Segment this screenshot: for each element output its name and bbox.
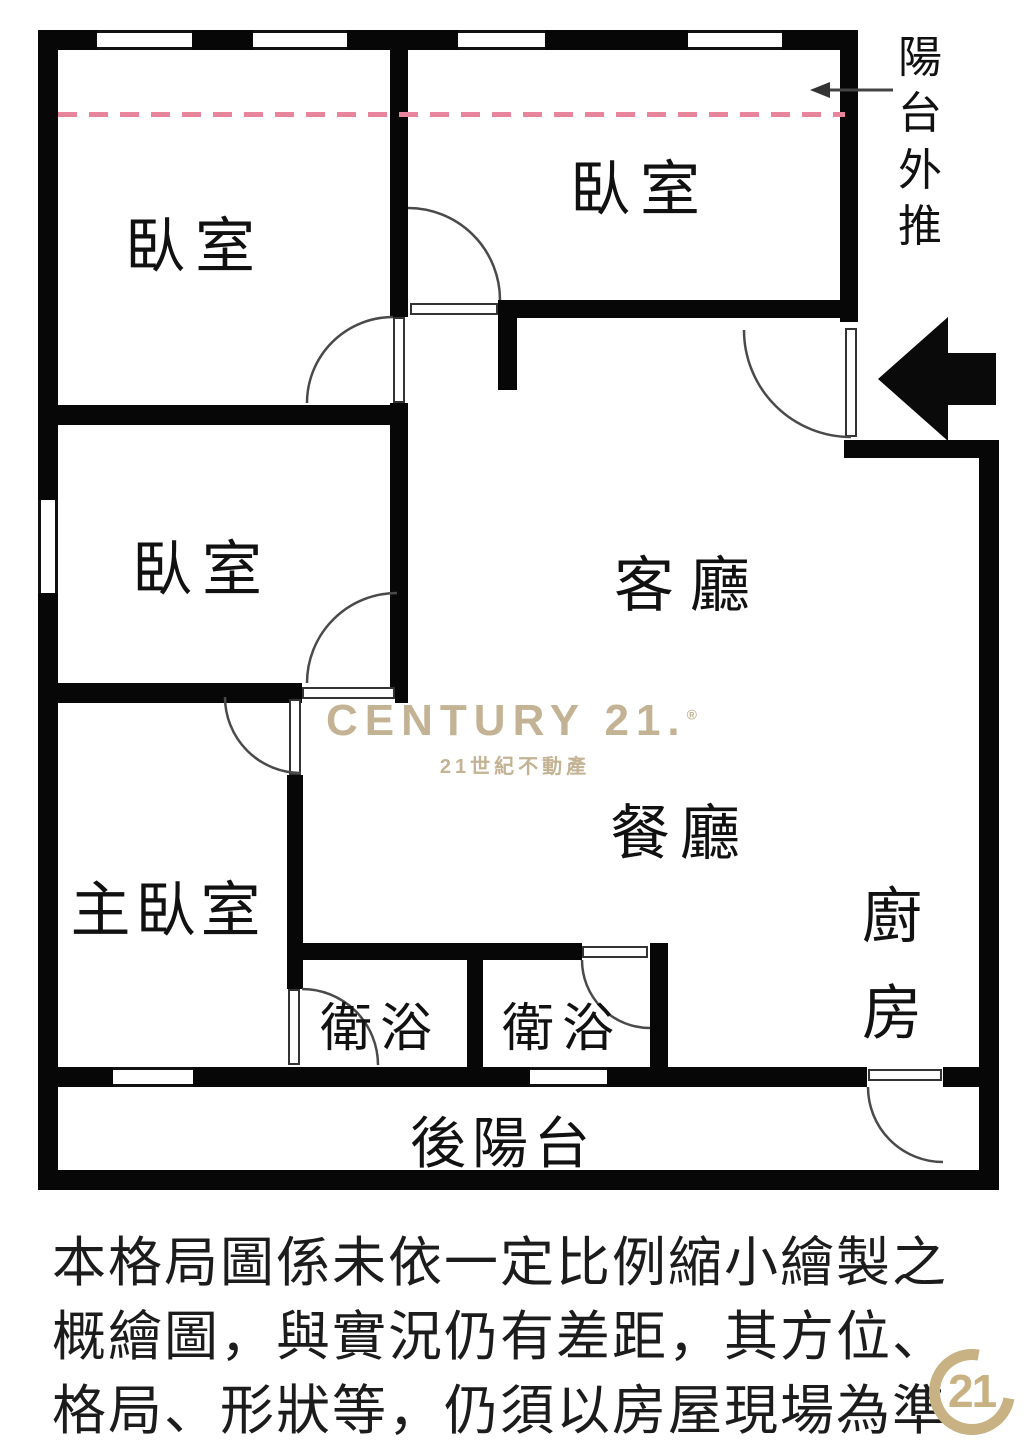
door-swing-arc	[744, 330, 851, 437]
century21-subtitle-text: 21世紀不動產	[320, 750, 710, 779]
pushout-arrowhead-icon	[810, 82, 830, 98]
disclaimer-line-2: 概繪圖，與實況仍有差距，其方位、	[52, 1300, 992, 1374]
door-swing-arc	[408, 208, 500, 300]
room-label-bedroom-middle: 臥室	[112, 521, 292, 608]
century21-seal-number: 21	[948, 1364, 995, 1418]
century21-watermark: CENTURY 21.® 21世紀不動產	[320, 696, 710, 779]
registered-trademark-icon: ®	[687, 706, 704, 722]
room-label-master-bedroom: 主臥室	[62, 862, 274, 949]
century21-brand-text: CENTURY 21.®	[320, 696, 710, 746]
room-label-dining-room: 餐廳	[590, 785, 770, 872]
door-swing-arc	[307, 317, 393, 403]
room-label-bathroom-left: 衛浴	[310, 986, 450, 1061]
room-label-living-room: 客廳	[600, 537, 780, 624]
room-label-bedroom-top-left: 臥室	[105, 198, 285, 285]
annotation-balcony-pushout: 陽台外推	[897, 30, 943, 255]
disclaimer-line-1: 本格局圖係未依一定比例縮小繪製之	[52, 1226, 992, 1300]
room-label-bathroom-right: 衛浴	[492, 986, 632, 1061]
disclaimer-line-3: 格局、形狀等，仍須以房屋現場為準	[52, 1374, 992, 1448]
room-label-back-balcony: 後陽台	[403, 1099, 603, 1180]
disclaimer-text: 本格局圖係未依一定比例縮小繪製之 概繪圖，與實況仍有差距，其方位、 格局、形狀等…	[52, 1226, 992, 1448]
door-swing-arc	[225, 697, 301, 773]
room-label-kitchen: 廚房	[861, 868, 923, 1062]
door-swing-arc	[868, 1087, 943, 1162]
door-swing-arc	[307, 593, 397, 683]
room-label-bedroom-top-right: 臥室	[550, 141, 730, 228]
floor-plan-screenshot: 臥室 臥室 臥室 客廳 餐廳 主臥室 衛浴 衛浴 廚房 後陽台 陽台外推 CEN…	[0, 0, 1024, 1448]
century21-brand-label: CENTURY 21.	[326, 696, 687, 745]
entrance-arrow-icon	[878, 317, 996, 441]
